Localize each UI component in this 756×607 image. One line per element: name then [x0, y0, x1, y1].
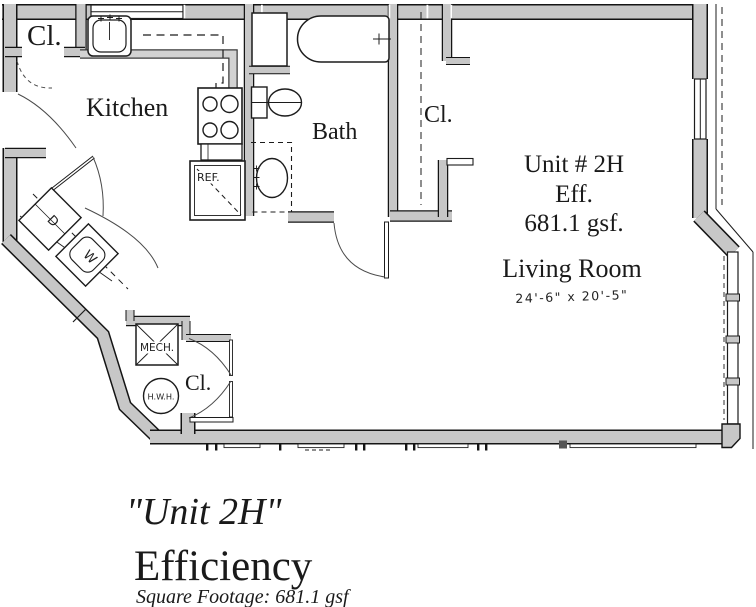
window-mullion	[726, 378, 740, 385]
kitchen-label: Kitchen	[86, 93, 168, 122]
top-closet-door-swing	[17, 61, 52, 88]
refrigerator-label: REF.	[197, 171, 220, 184]
linen-closet	[252, 13, 287, 66]
unit-area-label: 681.1 gsf.	[524, 210, 623, 237]
caption-block: "Unit 2H" Efficiency Square Footage: 681…	[126, 491, 351, 607]
entry-door-swing	[18, 94, 76, 148]
mech-room: MECH.	[136, 324, 178, 365]
bath-door	[334, 222, 389, 278]
unit-number-label: Unit # 2H	[524, 151, 624, 178]
caption-subtitle: Efficiency	[134, 543, 313, 590]
closet-right-label: Cl.	[424, 102, 453, 128]
living-room-label: Living Room	[502, 254, 641, 283]
floor-plan-canvas: REF. D W	[0, 0, 756, 607]
stove	[198, 88, 242, 144]
exterior-walls	[2, 4, 734, 437]
caption-footnote: Square Footage: 681.1 gsf	[136, 586, 351, 607]
kitchen-counter	[80, 54, 233, 89]
window-mullion	[726, 336, 740, 343]
unit-type-label: Eff.	[555, 181, 593, 208]
mech-label: MECH.	[140, 342, 174, 354]
bath-vanity	[251, 143, 292, 213]
closet-shelf-return	[447, 159, 473, 166]
closet-bottom-label: Cl.	[185, 370, 211, 395]
floor-plan-page: REF. D W	[0, 0, 756, 607]
water-heater: H.W.H.	[144, 379, 179, 414]
closet-top-left-label: Cl.	[27, 20, 62, 52]
kitchen-sink	[88, 15, 131, 57]
water-heater-label: H.W.H.	[148, 392, 175, 402]
caption-title: "Unit 2H"	[126, 491, 282, 533]
toilet	[252, 87, 302, 118]
window-mullion	[726, 294, 740, 301]
bath-label: Bath	[312, 119, 357, 145]
corner-block	[722, 424, 740, 448]
living-room-dimensions: 24'-6" x 20'-5"	[515, 287, 628, 306]
bathtub	[298, 16, 392, 62]
refrigerator: REF.	[190, 161, 245, 220]
base-cabinet	[201, 144, 242, 160]
